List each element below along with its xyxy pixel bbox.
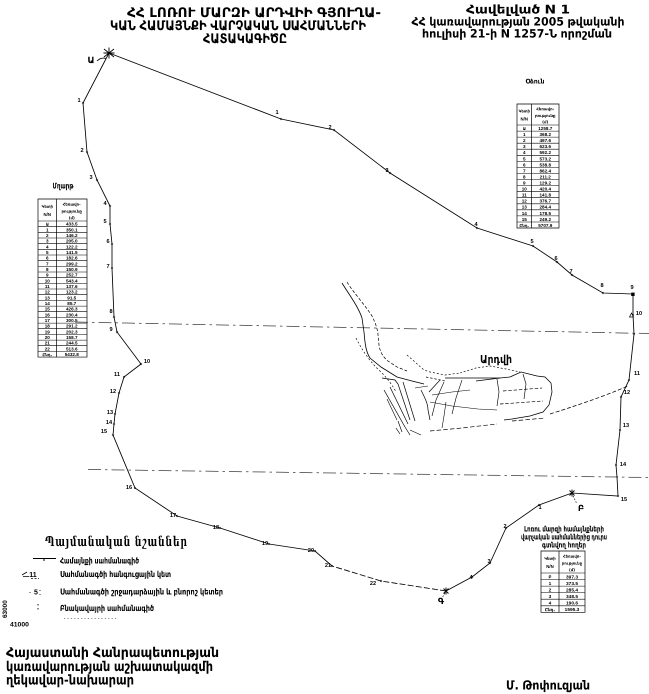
svg-text:11: 11 [522, 193, 527, 198]
svg-text:4: 4 [523, 150, 526, 155]
svg-text:3: 3 [523, 144, 526, 149]
svg-text:5707.9: 5707.9 [538, 223, 552, 228]
svg-text:11: 11 [45, 284, 50, 289]
svg-text:16: 16 [126, 485, 132, 491]
svg-text:6: 6 [554, 256, 557, 262]
svg-text:211.2: 211.2 [540, 174, 552, 179]
svg-text:8: 8 [109, 309, 112, 315]
svg-text:146.2: 146.2 [66, 233, 78, 238]
svg-text:8: 8 [523, 174, 526, 179]
svg-text:11: 11 [114, 372, 120, 378]
svg-text:15: 15 [522, 217, 528, 222]
svg-text:11: 11 [634, 371, 640, 377]
svg-text:137.6: 137.6 [66, 284, 78, 289]
svg-text:3: 3 [89, 175, 92, 181]
svg-text:1: 1 [77, 98, 80, 104]
svg-text:11: 11 [29, 572, 37, 579]
svg-text:41000: 41000 [10, 622, 29, 629]
svg-text:3: 3 [46, 239, 49, 244]
svg-text:3: 3 [385, 168, 388, 174]
svg-text:573.2: 573.2 [540, 156, 552, 161]
svg-text:17: 17 [170, 513, 176, 519]
svg-text:592.2: 592.2 [540, 150, 552, 155]
svg-text:1: 1 [538, 505, 541, 511]
svg-text:N/N: N/N [44, 212, 51, 217]
svg-text:4: 4 [474, 222, 478, 228]
svg-text:17: 17 [45, 318, 51, 323]
svg-text:10: 10 [522, 187, 528, 192]
svg-text:202.3: 202.3 [66, 329, 78, 334]
svg-text:18: 18 [213, 525, 219, 531]
svg-text:2: 2 [328, 125, 331, 131]
svg-text:244.5: 244.5 [66, 341, 78, 346]
svg-text:5432.8: 5432.8 [65, 352, 79, 357]
svg-text:2: 2 [80, 148, 83, 154]
svg-text:1: 1 [275, 110, 278, 116]
svg-text:1258.7: 1258.7 [538, 126, 552, 131]
svg-text:205.0: 205.0 [66, 239, 78, 244]
svg-text:141.5: 141.5 [66, 250, 78, 255]
svg-text:18: 18 [45, 324, 51, 329]
svg-text:249.2: 249.2 [540, 217, 552, 222]
svg-text:9: 9 [109, 327, 112, 333]
svg-text:N/N: N/N [546, 564, 553, 569]
svg-text:16: 16 [45, 312, 51, 317]
svg-text:7: 7 [569, 269, 572, 275]
svg-text:14: 14 [620, 462, 627, 468]
svg-text:2: 2 [503, 524, 506, 530]
svg-text:5: 5 [103, 219, 106, 225]
svg-text:7: 7 [46, 261, 49, 266]
svg-text:9: 9 [523, 181, 526, 186]
svg-text:376.7: 376.7 [540, 199, 552, 204]
svg-text:368.2: 368.2 [540, 132, 552, 137]
svg-text:862.4: 862.4 [540, 168, 552, 173]
svg-text:150.9: 150.9 [66, 267, 78, 272]
svg-text:291.2: 291.2 [66, 324, 78, 329]
svg-text:22: 22 [45, 346, 51, 351]
svg-text:14: 14 [45, 301, 51, 306]
svg-text:129.2: 129.2 [540, 181, 552, 186]
svg-text:5: 5 [523, 156, 526, 161]
svg-text:10: 10 [636, 311, 642, 317]
svg-text:85.7: 85.7 [67, 301, 76, 306]
svg-text:426.3: 426.3 [66, 307, 78, 312]
svg-text:15: 15 [101, 429, 107, 435]
svg-text:1: 1 [523, 132, 526, 137]
svg-text:141.8: 141.8 [540, 193, 552, 198]
svg-text:13: 13 [623, 423, 629, 429]
svg-text:12: 12 [624, 390, 630, 396]
svg-text:19: 19 [262, 541, 268, 547]
svg-text:5: 5 [34, 590, 38, 597]
svg-text:284.4: 284.4 [540, 205, 552, 210]
svg-text:12: 12 [45, 290, 51, 295]
svg-text:7: 7 [106, 264, 109, 270]
svg-text:420.4: 420.4 [540, 187, 552, 192]
svg-text:3: 3 [487, 559, 490, 565]
svg-text:350.1: 350.1 [66, 227, 78, 232]
svg-text:20: 20 [45, 335, 51, 340]
svg-text:4: 4 [46, 244, 49, 249]
svg-text:178.5: 178.5 [540, 211, 552, 216]
svg-text:14: 14 [522, 211, 528, 216]
svg-text:252.7: 252.7 [66, 273, 78, 278]
svg-text:299.2: 299.2 [66, 261, 78, 266]
svg-text:433.5: 433.5 [66, 222, 78, 227]
svg-text:6: 6 [46, 256, 49, 261]
svg-text:12: 12 [110, 389, 116, 395]
svg-text:123.2: 123.2 [66, 290, 78, 295]
svg-text:6: 6 [523, 162, 526, 167]
svg-text:513.6: 513.6 [66, 346, 78, 351]
svg-text:9: 9 [46, 273, 49, 278]
svg-text:22: 22 [370, 581, 376, 587]
svg-text:5: 5 [46, 250, 49, 255]
svg-text:21: 21 [45, 341, 51, 346]
svg-text:14: 14 [106, 420, 113, 426]
svg-text:63000: 63000 [2, 600, 9, 618]
svg-text:122.2: 122.2 [66, 244, 78, 249]
svg-text:6: 6 [106, 239, 109, 245]
svg-text:15: 15 [45, 307, 51, 312]
svg-text:13: 13 [522, 205, 528, 210]
svg-text:15: 15 [621, 497, 627, 503]
svg-text:10: 10 [45, 278, 51, 283]
svg-text:8: 8 [46, 267, 49, 272]
svg-text:12: 12 [522, 199, 528, 204]
svg-text:4: 4 [103, 201, 107, 207]
svg-text:497.6: 497.6 [540, 138, 552, 143]
svg-text:1595.3: 1595.3 [565, 607, 580, 613]
svg-text:N/N: N/N [521, 116, 528, 121]
svg-text:158.7: 158.7 [66, 335, 78, 340]
svg-text:5: 5 [530, 239, 533, 245]
svg-text:91.5: 91.5 [67, 295, 76, 300]
svg-text:538.8: 538.8 [540, 162, 552, 167]
svg-text:623.6: 623.6 [540, 144, 552, 149]
svg-text:7: 7 [523, 168, 526, 173]
svg-text:13: 13 [107, 410, 113, 416]
svg-text:2: 2 [46, 233, 49, 238]
svg-text:182.6: 182.6 [66, 256, 78, 261]
svg-text:13: 13 [45, 295, 51, 300]
svg-text:9: 9 [630, 285, 633, 291]
svg-text:543.4: 543.4 [66, 278, 78, 283]
svg-text:230.4: 230.4 [66, 312, 78, 317]
svg-text:20: 20 [308, 548, 314, 554]
svg-text:19: 19 [45, 329, 51, 334]
svg-text:8: 8 [600, 283, 603, 289]
svg-text:2: 2 [523, 138, 526, 143]
svg-text:21: 21 [325, 563, 331, 569]
svg-text:10: 10 [144, 359, 150, 365]
svg-text:1: 1 [46, 227, 49, 232]
